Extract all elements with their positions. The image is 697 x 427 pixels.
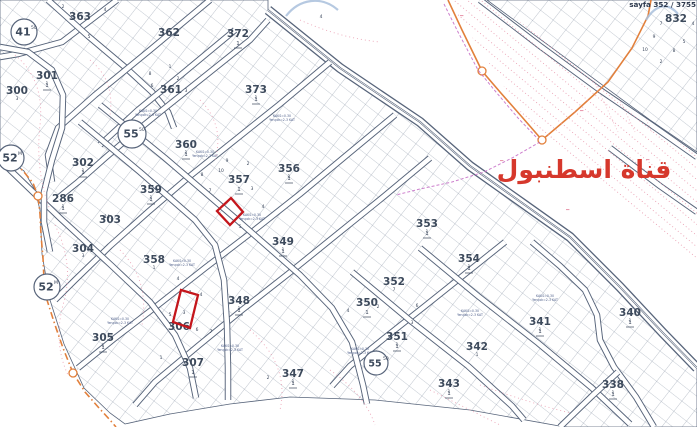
parcel-number: 5 [239, 224, 242, 230]
parcel-number: 9 [653, 34, 656, 40]
block-label-347: 347 [282, 368, 304, 380]
parcel-number: 2 [660, 59, 663, 65]
junction-marker-sup: M [54, 280, 58, 286]
block-label-372: 372 [227, 28, 249, 40]
boundary-node [69, 369, 77, 377]
block-label-373: 373 [245, 84, 267, 96]
parcel-number: 10 [642, 47, 648, 53]
block-label-349: 349 [272, 236, 294, 248]
parcel-number: 1 [476, 352, 479, 358]
parcel-number: 1 [612, 390, 615, 396]
parcel-number: 1 [238, 306, 241, 312]
parcel-number: 2 [177, 76, 180, 82]
zoning-annotation: Yençok=2-3 KAT [457, 313, 483, 317]
junction-marker-sup: M [18, 151, 22, 157]
canal-label: قناة اسطنبول [497, 155, 672, 185]
parcel-number: 7 [660, 21, 663, 27]
zoning-annotation: Yençok=2-3 KAT [532, 298, 558, 302]
blue-pen-stroke [286, 1, 338, 16]
parcel-number: 2 [62, 4, 65, 10]
zoning-annotation: Yençok=2-3 KAT [217, 348, 243, 352]
block-label-362: 362 [158, 27, 180, 39]
parcel-number: 7 [393, 287, 396, 293]
block-label-305: 305 [92, 332, 114, 344]
parcel-number: 1 [62, 204, 65, 210]
block-label-303: 303 [99, 214, 121, 226]
junction-marker-sup: 50 [31, 25, 37, 31]
parcel-number: 2 [247, 161, 250, 167]
parcel-number: 3 [411, 320, 414, 326]
parcel-number: 1 [46, 81, 49, 87]
parcel-number: 2 [377, 304, 380, 310]
junction-marker-label: 52 [38, 281, 53, 294]
parcel-number: 1 [539, 327, 542, 333]
cadastral-map: 3633623721301130036137313601302135613571… [0, 0, 697, 427]
block-label-358: 358 [143, 254, 165, 266]
block-label-356: 356 [278, 163, 300, 175]
contour-tick [460, 15, 463, 16]
parcel-number: 1 [82, 168, 85, 174]
parcel-number: 1 [468, 264, 471, 270]
parcel-number: 5 [169, 312, 172, 318]
junction-marker-sup: 50 [383, 356, 389, 362]
block-label-302: 302 [72, 157, 94, 169]
junction-marker-label: 55 [123, 128, 138, 141]
block-label-340: 340 [619, 307, 641, 319]
parcel-number: 3 [183, 310, 186, 316]
block-label-351: 351 [386, 331, 408, 343]
block-label-360: 360 [175, 139, 197, 151]
parcel-number: 1 [448, 389, 451, 395]
contour-tick [580, 110, 583, 111]
parcel-number: 10 [218, 168, 224, 174]
parcel-number: 1 [629, 318, 632, 324]
parcel-number: 5 [88, 34, 91, 40]
parcel-number: 3 [185, 88, 188, 94]
parcel-number: 4 [177, 276, 180, 282]
zoning-annotation: Yençok=2-3 KAT [135, 113, 161, 117]
parcel-number: 4 [200, 292, 203, 298]
block-label-300: 300 [6, 85, 28, 97]
parcel-number: 1 [282, 247, 285, 253]
contour-tick [566, 209, 569, 210]
block-label-832: 832 [665, 13, 687, 25]
junction-marker-sup: 50 [139, 127, 145, 133]
block-label-363: 363 [69, 11, 91, 23]
junction-marker-label: 41 [15, 26, 30, 39]
block-label-354: 354 [458, 253, 480, 265]
block-label-307: 307 [182, 357, 204, 369]
block-label-350: 350 [356, 297, 378, 309]
parcel-number: 1 [426, 229, 429, 235]
block-sub-parcel: 1 [191, 370, 195, 376]
parcel-number: 14 [104, 214, 110, 220]
block-label-348: 348 [228, 295, 250, 307]
contour-tick [513, 112, 516, 113]
block-label-342: 342 [466, 341, 488, 353]
parcel-number: 4 [347, 308, 350, 314]
parcel-number: 4 [692, 21, 695, 27]
parcel-number: 9 [226, 158, 229, 164]
parcel-number: 1 [288, 174, 291, 180]
parcel-number: 7 [209, 188, 212, 194]
parcel-number: 5 [683, 39, 686, 45]
boundary-node [34, 192, 42, 200]
parcel-number: 8 [149, 71, 152, 77]
parcel-number: 3 [16, 96, 19, 102]
zoning-annotation: Yençok=2-3 KAT [169, 263, 195, 267]
map-viewport: 3633623721301130036137313601302135613571… [0, 0, 697, 427]
parcel-number: 6 [196, 327, 199, 333]
block-label-301: 301 [36, 70, 58, 82]
parcel-number: 8 [673, 48, 676, 54]
parcel-number: 3 [82, 253, 85, 259]
block-label-353: 353 [416, 218, 438, 230]
block-label-359: 359 [140, 184, 162, 196]
parcel-number: 1 [150, 195, 153, 201]
parcel-number: 3 [251, 186, 254, 192]
block-sub-parcel: 1 [237, 187, 241, 193]
parcel-number: 1 [292, 379, 295, 385]
parcel-number: 2 [267, 375, 270, 381]
parcel-number: 4 [320, 14, 323, 20]
block-label-286: 286 [52, 193, 74, 205]
junction-marker-label: 52 [2, 152, 17, 165]
parcel-number: 7 [210, 329, 213, 335]
parcel-number: 1 [255, 95, 258, 101]
parcel-number: 1 [169, 64, 172, 70]
zoning-annotation: Yençok=2-3 KAT [192, 154, 218, 158]
block-label-352: 352 [383, 276, 405, 288]
sheet-number-label: sayfa 352 / 3755 [629, 0, 696, 9]
block-label-341: 341 [529, 316, 551, 328]
parcel-number: 4 [104, 7, 107, 13]
parcel-number: 8 [201, 172, 204, 178]
parcel-number: 1 [396, 342, 399, 348]
block-sub-parcel: 1 [236, 41, 240, 47]
zoning-annotation: Yençok=2-3 KAT [107, 321, 133, 325]
block-sub-parcel: 1 [365, 310, 369, 316]
block-label-357: 357 [228, 174, 250, 186]
parcel-number: 6 [151, 83, 154, 89]
parcel-number: 1 [102, 343, 105, 349]
parcel-number: 1 [185, 150, 188, 156]
block-label-361: 361 [160, 84, 182, 96]
parcel-number: 1 [160, 355, 163, 361]
zoning-annotation: Yençok=2-3 KAT [269, 118, 295, 122]
zoning-annotation: Yençok=2-3 KAT [239, 217, 265, 221]
parcel-number: 4 [262, 204, 265, 210]
block-label-338: 338 [602, 379, 624, 391]
contour-line [300, 20, 380, 42]
parcel-number: 1 [153, 265, 156, 271]
junction-marker-label: 55 [368, 359, 381, 370]
parcel-number: 6 [416, 303, 419, 309]
block-label-343: 343 [438, 378, 460, 390]
